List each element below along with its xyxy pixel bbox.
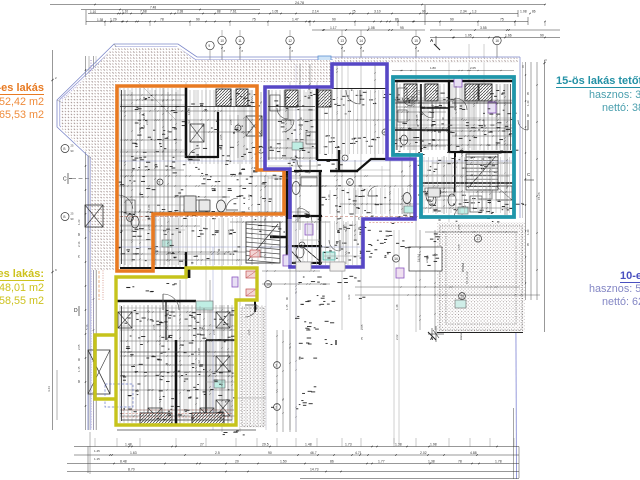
svg-text:25: 25: [71, 144, 74, 148]
svg-text:90: 90: [196, 17, 200, 21]
svg-text:9: 9: [55, 268, 57, 272]
svg-text:2.05: 2.05: [415, 119, 419, 125]
svg-text:4: 4: [259, 148, 261, 152]
svg-text:1.45: 1.45: [94, 449, 100, 453]
svg-text:2.05: 2.05: [227, 229, 231, 235]
svg-text:25: 25: [71, 212, 74, 216]
svg-text:75: 75: [360, 336, 364, 340]
svg-text:16: 16: [495, 39, 499, 43]
svg-text:2.05: 2.05: [457, 224, 461, 230]
svg-text:86: 86: [330, 459, 334, 463]
svg-text:29.5: 29.5: [262, 442, 269, 446]
svg-text:B: B: [348, 180, 350, 184]
svg-text:86: 86: [395, 17, 399, 21]
svg-text:2.2: 2.2: [299, 126, 303, 130]
svg-text:3: 3: [275, 363, 277, 367]
svg-text:90: 90: [540, 33, 544, 37]
svg-text:1.48: 1.48: [305, 442, 312, 446]
svg-text:1.17: 1.17: [330, 26, 337, 30]
svg-text:1.3: 1.3: [472, 9, 477, 13]
svg-text:m2: m2: [187, 120, 191, 124]
svg-text:2.14: 2.14: [312, 9, 319, 13]
svg-text:8: 8: [363, 49, 365, 53]
svg-text:90: 90: [165, 336, 169, 340]
svg-text:45: 45: [521, 65, 525, 68]
svg-text:2.05: 2.05: [229, 119, 233, 125]
svg-text:4.71: 4.71: [355, 451, 362, 455]
svg-text:erkely: erkely: [425, 254, 429, 263]
svg-text:2.05: 2.05: [212, 329, 216, 335]
svg-text:90: 90: [332, 17, 336, 21]
svg-text:2.34: 2.34: [460, 9, 467, 13]
svg-text:8: 8: [344, 49, 346, 53]
svg-text:4.44: 4.44: [47, 386, 51, 392]
svg-text:4: 4: [383, 130, 385, 134]
svg-text:2.62: 2.62: [395, 334, 399, 340]
svg-text:88: 88: [217, 9, 221, 13]
svg-text:1.48: 1.48: [125, 442, 132, 446]
svg-text:2.38: 2.38: [177, 9, 183, 13]
svg-text:90: 90: [285, 296, 289, 300]
svg-text:2: 2: [55, 76, 57, 80]
svg-text:1.10: 1.10: [122, 9, 128, 13]
svg-text:1.50: 1.50: [280, 459, 287, 463]
svg-text:10,5: 10,5: [475, 89, 479, 95]
svg-text:1.05: 1.05: [465, 33, 472, 37]
svg-text:20: 20: [235, 459, 239, 463]
svg-text:46.7: 46.7: [310, 451, 317, 455]
svg-text:95: 95: [526, 242, 530, 246]
svg-text:88: 88: [526, 113, 530, 117]
svg-text:88: 88: [77, 379, 81, 383]
svg-text:1.38: 1.38: [97, 18, 103, 22]
svg-text:1.29: 1.29: [110, 17, 117, 21]
svg-text:m2: m2: [197, 360, 201, 364]
svg-text:m2: m2: [307, 95, 311, 99]
svg-text:3.55: 3.55: [480, 26, 487, 30]
svg-text:14: 14: [359, 39, 363, 43]
svg-text:16,95: 16,95: [142, 113, 146, 120]
svg-text:1.73: 1.73: [345, 442, 352, 446]
svg-text:4.88: 4.88: [470, 451, 477, 455]
svg-text:90: 90: [441, 116, 445, 120]
svg-text:12: 12: [288, 39, 292, 43]
svg-text:75: 75: [357, 216, 361, 220]
svg-text:terasz: terasz: [461, 262, 465, 272]
svg-text:1.80: 1.80: [430, 66, 436, 70]
svg-text:1.15: 1.15: [285, 304, 289, 310]
svg-text:1.15: 1.15: [77, 366, 81, 372]
svg-text:8: 8: [224, 49, 226, 53]
svg-text:7.68: 7.68: [140, 9, 147, 13]
svg-text:75: 75: [500, 17, 504, 21]
svg-text:5: 5: [158, 180, 160, 184]
svg-text:1.66: 1.66: [505, 33, 512, 37]
svg-text:1.08: 1.08: [520, 9, 527, 13]
svg-text:2.05: 2.05: [482, 119, 486, 125]
svg-text:11: 11: [238, 39, 242, 43]
svg-text:kilatas: kilatas: [459, 331, 463, 340]
svg-text:8: 8: [242, 49, 244, 53]
svg-text:D: D: [74, 308, 78, 314]
svg-text:2.05: 2.05: [342, 224, 346, 230]
svg-text:88: 88: [77, 232, 81, 236]
svg-text:1.98: 1.98: [430, 442, 437, 446]
svg-text:10: 10: [220, 39, 224, 43]
svg-text:B: B: [63, 215, 65, 219]
svg-text:B: B: [128, 216, 130, 220]
svg-text:13,45: 13,45: [197, 348, 201, 355]
svg-text:2.5: 2.5: [215, 451, 220, 455]
svg-text:8: 8: [418, 49, 420, 53]
svg-text:17: 17: [476, 237, 480, 241]
svg-text:78: 78: [160, 17, 164, 21]
svg-text:90: 90: [299, 116, 303, 120]
svg-text:2.05: 2.05: [152, 324, 156, 330]
svg-text:3.10: 3.10: [374, 9, 381, 13]
svg-text:75: 75: [247, 206, 251, 210]
svg-text:16: 16: [394, 257, 398, 261]
svg-text:95: 95: [400, 26, 404, 30]
svg-text:1.40: 1.40: [327, 194, 331, 200]
svg-text:75: 75: [77, 254, 81, 258]
svg-text:86: 86: [532, 9, 536, 13]
svg-text:90: 90: [450, 17, 454, 21]
svg-text:8.70: 8.70: [128, 467, 135, 471]
svg-text:1.40: 1.40: [247, 194, 251, 200]
svg-text:13: 13: [340, 39, 344, 43]
svg-text:1.40: 1.40: [526, 100, 530, 106]
svg-text:18: 18: [460, 294, 464, 298]
svg-text:A: A: [430, 38, 434, 43]
svg-text:1.05: 1.05: [272, 9, 278, 13]
svg-text:2.05: 2.05: [360, 324, 364, 330]
svg-text:75: 75: [352, 9, 356, 13]
svg-text:27: 27: [200, 442, 204, 446]
svg-text:1.08: 1.08: [368, 26, 375, 30]
svg-text:15.26: 15.26: [537, 192, 541, 200]
svg-text:15: 15: [414, 39, 418, 43]
svg-text:1.47: 1.47: [292, 17, 299, 21]
svg-text:2.05: 2.05: [470, 66, 476, 70]
svg-text:7.61: 7.61: [230, 9, 237, 13]
svg-text:2.16: 2.16: [77, 241, 81, 247]
svg-text:90: 90: [268, 451, 272, 455]
svg-text:2.05: 2.05: [289, 119, 293, 125]
svg-text:8: 8: [292, 49, 294, 53]
svg-text:2.05: 2.05: [147, 224, 151, 230]
svg-text:2.05: 2.05: [77, 344, 81, 350]
svg-text:90: 90: [147, 216, 151, 220]
svg-text:2.05: 2.05: [247, 329, 251, 335]
svg-text:4.23: 4.23: [347, 294, 351, 300]
svg-text:2.45: 2.45: [165, 324, 169, 330]
svg-text:1: 1: [343, 156, 345, 160]
svg-text:9: 9: [208, 44, 210, 48]
svg-text:C: C: [63, 177, 67, 183]
svg-text:78: 78: [458, 459, 462, 463]
svg-text:1.48: 1.48: [395, 304, 399, 310]
svg-text:7.48: 7.48: [150, 6, 156, 10]
svg-text:90: 90: [71, 217, 74, 221]
svg-text:90: 90: [71, 149, 74, 153]
svg-text:90: 90: [422, 9, 426, 13]
svg-text:1.10: 1.10: [90, 10, 96, 14]
svg-text:15,31 m2: 15,31 m2: [465, 271, 469, 284]
svg-text:14.73: 14.73: [310, 467, 319, 471]
svg-text:75: 75: [252, 17, 256, 21]
svg-text:2.05: 2.05: [145, 119, 149, 125]
svg-text:14,94: 14,94: [417, 254, 421, 262]
svg-text:1.15: 1.15: [94, 457, 100, 461]
svg-text:2.05: 2.05: [219, 134, 223, 140]
svg-text:1.38: 1.38: [395, 442, 402, 446]
svg-text:1.63: 1.63: [130, 451, 137, 455]
svg-text:2.05: 2.05: [457, 244, 461, 250]
svg-text:95: 95: [526, 91, 530, 95]
svg-text:2: 2: [275, 405, 277, 409]
svg-text:90: 90: [77, 357, 81, 361]
svg-text:1.40: 1.40: [526, 229, 530, 235]
svg-text:2.02: 2.02: [420, 451, 427, 455]
svg-text:1.85: 1.85: [415, 114, 419, 120]
svg-text:1.28: 1.28: [359, 94, 363, 100]
svg-text:C: C: [527, 172, 531, 177]
svg-text:1.38: 1.38: [428, 459, 435, 463]
svg-text:1.78: 1.78: [495, 459, 502, 463]
svg-text:1.23: 1.23: [77, 219, 81, 225]
svg-text:8.48: 8.48: [120, 459, 127, 463]
svg-text:B: B: [63, 147, 65, 151]
svg-text:1.77: 1.77: [378, 459, 385, 463]
svg-text:18: 18: [266, 282, 270, 286]
